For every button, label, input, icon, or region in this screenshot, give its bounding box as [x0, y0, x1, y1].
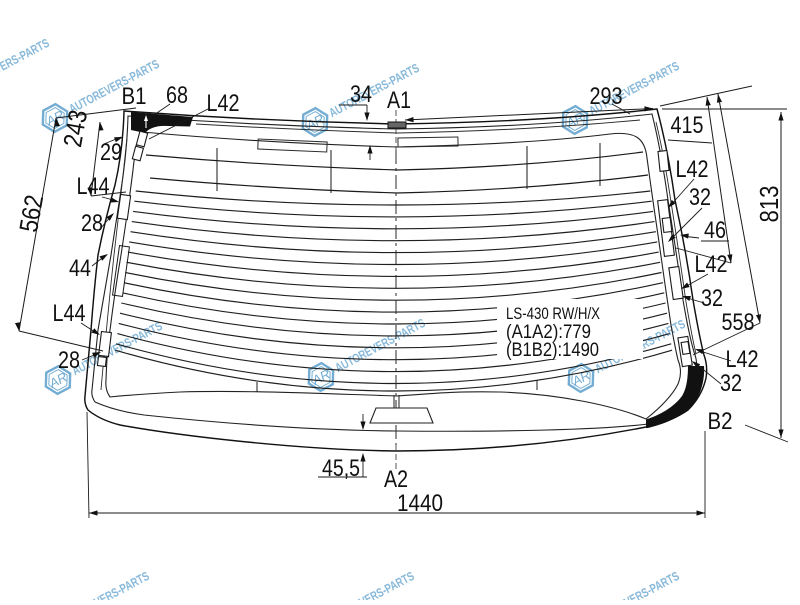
- svg-text:A1: A1: [387, 87, 411, 114]
- svg-text:28: 28: [81, 210, 103, 237]
- svg-text:813: 813: [754, 186, 784, 223]
- svg-text:29: 29: [100, 139, 122, 166]
- svg-text:L42: L42: [726, 346, 759, 373]
- svg-text:L42: L42: [207, 90, 240, 117]
- svg-text:A2: A2: [384, 466, 408, 493]
- svg-text:B2: B2: [708, 408, 733, 435]
- svg-text:L42: L42: [695, 251, 728, 278]
- svg-text:L44: L44: [53, 300, 86, 327]
- svg-text:B1: B1: [122, 83, 147, 110]
- svg-text:562: 562: [13, 193, 49, 235]
- svg-text:1440: 1440: [397, 490, 443, 517]
- svg-text:243: 243: [57, 108, 93, 150]
- svg-text:45,5: 45,5: [322, 455, 360, 482]
- svg-text:28: 28: [58, 347, 80, 374]
- svg-text:46: 46: [704, 217, 726, 244]
- svg-text:32: 32: [701, 285, 723, 312]
- svg-text:68: 68: [166, 82, 188, 109]
- svg-text:34: 34: [350, 81, 372, 108]
- svg-text:293: 293: [590, 83, 623, 110]
- svg-text:558: 558: [722, 309, 755, 336]
- svg-text:(B1B2):1490: (B1B2):1490: [506, 339, 599, 361]
- svg-text:44: 44: [69, 255, 91, 282]
- svg-text:415: 415: [671, 112, 704, 139]
- svg-text:L42: L42: [676, 156, 709, 183]
- svg-text:L44: L44: [77, 173, 110, 200]
- svg-text:32: 32: [689, 184, 711, 211]
- svg-text:32: 32: [720, 370, 742, 397]
